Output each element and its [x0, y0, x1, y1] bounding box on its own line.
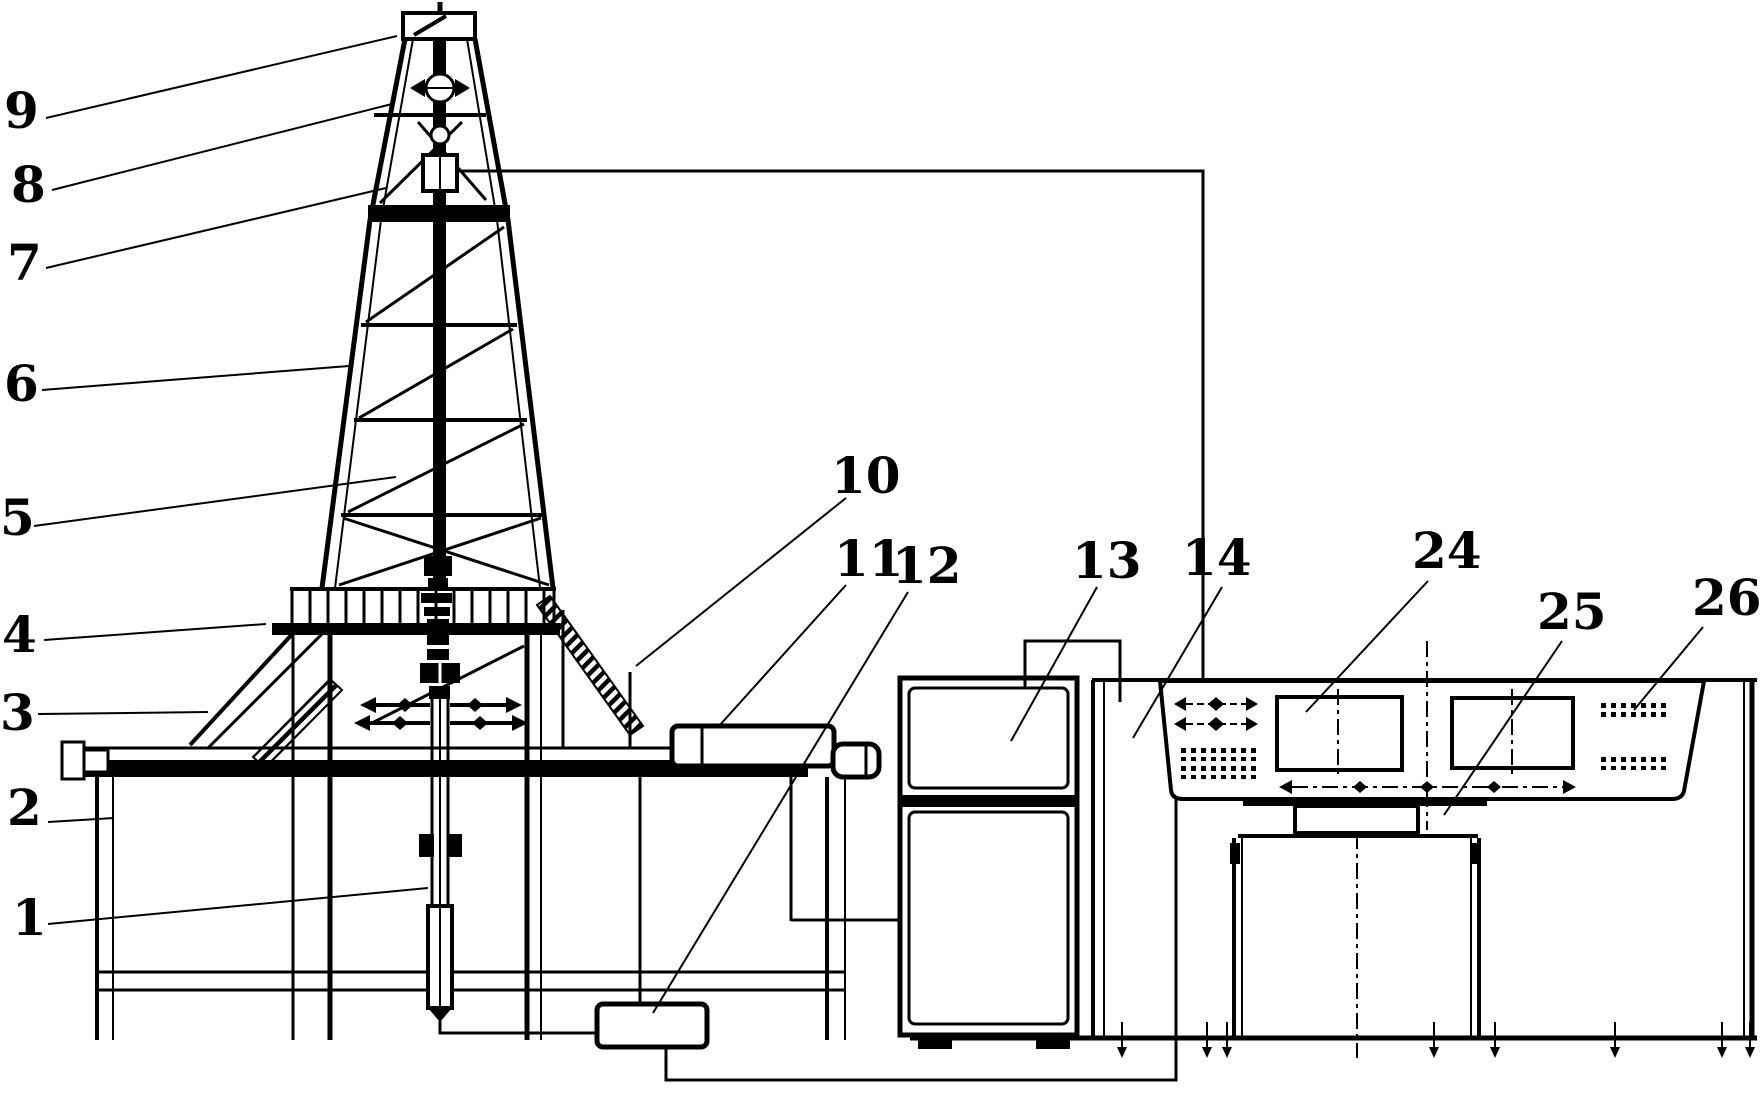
leader-6	[42, 366, 349, 390]
console-pedestal	[1230, 803, 1487, 1037]
keyboard-tray	[1295, 806, 1418, 833]
console-buttons-left	[1180, 746, 1256, 761]
leader-12	[653, 592, 908, 1013]
instrument-cabinet	[900, 641, 1120, 1049]
ref-label-24: 24	[1412, 526, 1482, 576]
downhole-sensor	[428, 906, 452, 1022]
junction-box	[597, 1004, 707, 1047]
derrick	[322, 2, 553, 589]
hook-block	[423, 155, 457, 191]
leader-3	[38, 712, 208, 714]
ref-label-4: 4	[2, 610, 37, 660]
console-screen-1	[1277, 697, 1402, 770]
ref-label-3: 3	[0, 688, 35, 738]
ref-label-14: 14	[1182, 533, 1252, 583]
leader-1	[48, 888, 428, 924]
console-buttons-left2	[1180, 764, 1256, 779]
leader-8	[52, 104, 392, 190]
rig-platform	[272, 589, 560, 635]
derrick-mast	[433, 39, 446, 589]
ramp-rail	[190, 630, 296, 745]
ref-label-25: 25	[1537, 587, 1607, 637]
leader-4	[44, 624, 266, 640]
ref-label-1: 1	[12, 893, 47, 943]
ref-label-2: 2	[7, 783, 42, 833]
ref-label-26: 26	[1692, 573, 1762, 623]
ref-label-12: 12	[892, 541, 962, 591]
patent-figure: 1 2 3 4 5 6 7 8 9 10 11 12 13 14 24 25 2…	[0, 0, 1764, 1096]
leader-2	[48, 818, 114, 822]
ref-label-10: 10	[831, 451, 901, 501]
console-buttons-right2	[1596, 754, 1668, 770]
console-buttons-right	[1596, 701, 1668, 717]
leader-9	[46, 36, 397, 118]
ref-label-7: 7	[7, 238, 42, 288]
ref-label-8: 8	[11, 160, 46, 210]
ref-label-5: 5	[0, 493, 35, 543]
stairway	[537, 596, 643, 735]
leader-7	[46, 188, 386, 268]
base-structure	[95, 748, 901, 1043]
ref-label-9: 9	[4, 86, 39, 136]
sensor-cable	[440, 1020, 598, 1033]
ref-label-6: 6	[4, 359, 39, 409]
crown-block	[403, 13, 475, 39]
ref-label-13: 13	[1072, 536, 1142, 586]
leader-11	[719, 585, 846, 726]
leader-10	[636, 498, 846, 666]
leader-5	[34, 477, 396, 526]
